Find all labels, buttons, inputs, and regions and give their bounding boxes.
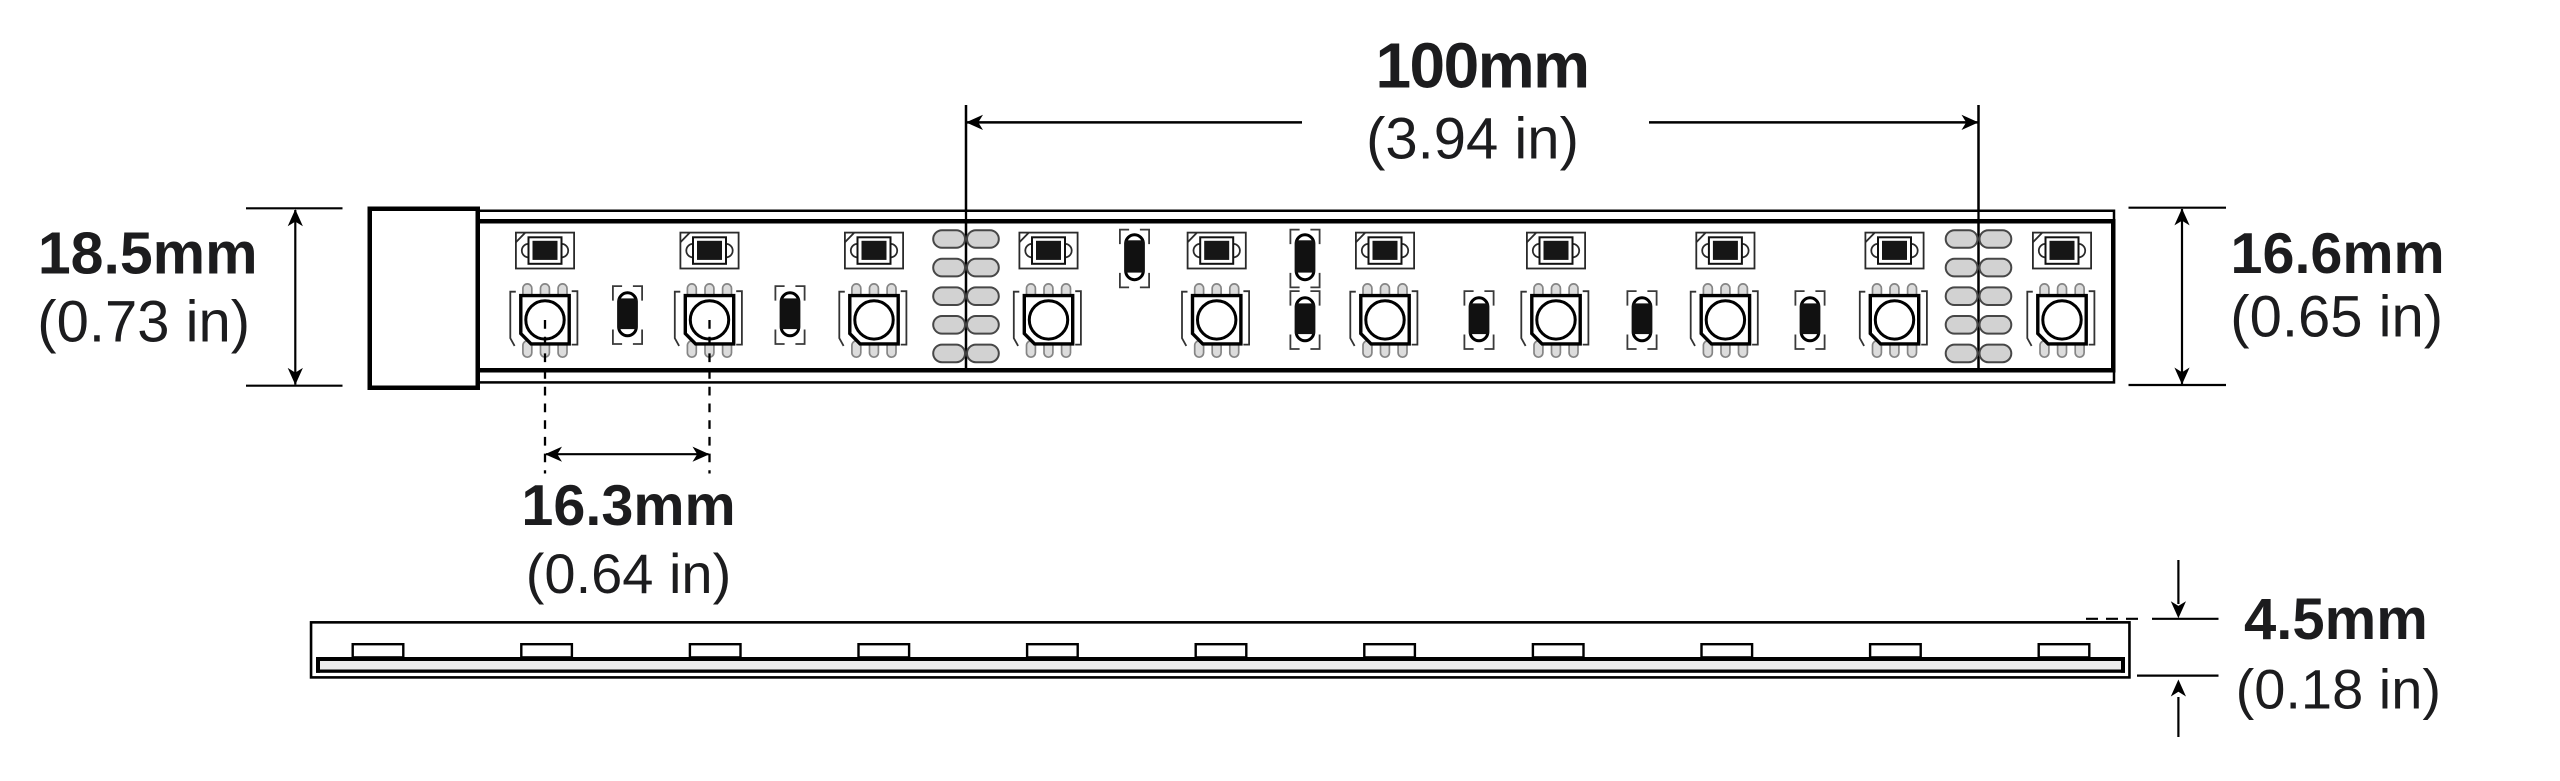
svg-text:(0.73 in): (0.73 in) [37, 290, 250, 355]
svg-text:(0.65 in): (0.65 in) [2230, 285, 2443, 350]
svg-text:16.3mm: 16.3mm [521, 474, 735, 538]
svg-text:(0.18 in): (0.18 in) [2236, 658, 2441, 721]
svg-text:18.5mm: 18.5mm [38, 220, 258, 286]
svg-text:(0.64 in): (0.64 in) [526, 542, 731, 605]
svg-text:100mm: 100mm [1375, 29, 1588, 101]
svg-text:(3.94 in): (3.94 in) [1366, 106, 1579, 171]
svg-text:16.6mm: 16.6mm [2231, 222, 2445, 286]
svg-text:4.5mm: 4.5mm [2244, 587, 2428, 652]
